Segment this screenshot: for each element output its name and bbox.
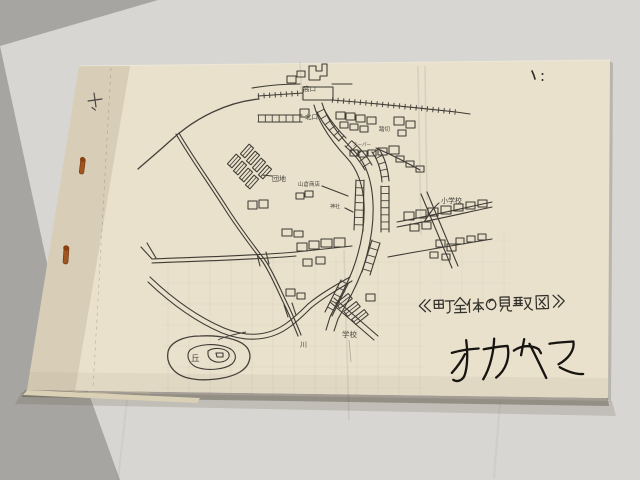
label-elementary-school: 小学校: [441, 196, 462, 205]
label-housing-complex: 団地: [272, 174, 286, 183]
photo-scene: 高口 北口 踏切 スーパー 団地 山倉商店 神社 小学校 学校 川 丘 《町全体…: [0, 0, 640, 480]
label-supermarket: スーパー: [353, 142, 371, 148]
signature-text: オカヤマ: [449, 333, 587, 380]
label-hill: 丘: [191, 354, 200, 364]
label-river: 川: [300, 341, 307, 349]
brad-head: [80, 157, 85, 162]
label-school: 学校: [342, 329, 357, 339]
label-rail-crossing: 踏切: [379, 125, 391, 133]
label-station-exit: 高口: [303, 84, 316, 93]
photo-of-map-booklet: 高口 北口 踏切 スーパー 団地 山倉商店 神社 小学校 学校 川 丘 《町全体…: [0, 0, 640, 480]
brad-head: [63, 245, 69, 251]
label-shop: 山倉商店: [298, 180, 321, 188]
label-shrine: 神社: [330, 203, 340, 210]
label-north-exit: 北口: [305, 113, 318, 121]
